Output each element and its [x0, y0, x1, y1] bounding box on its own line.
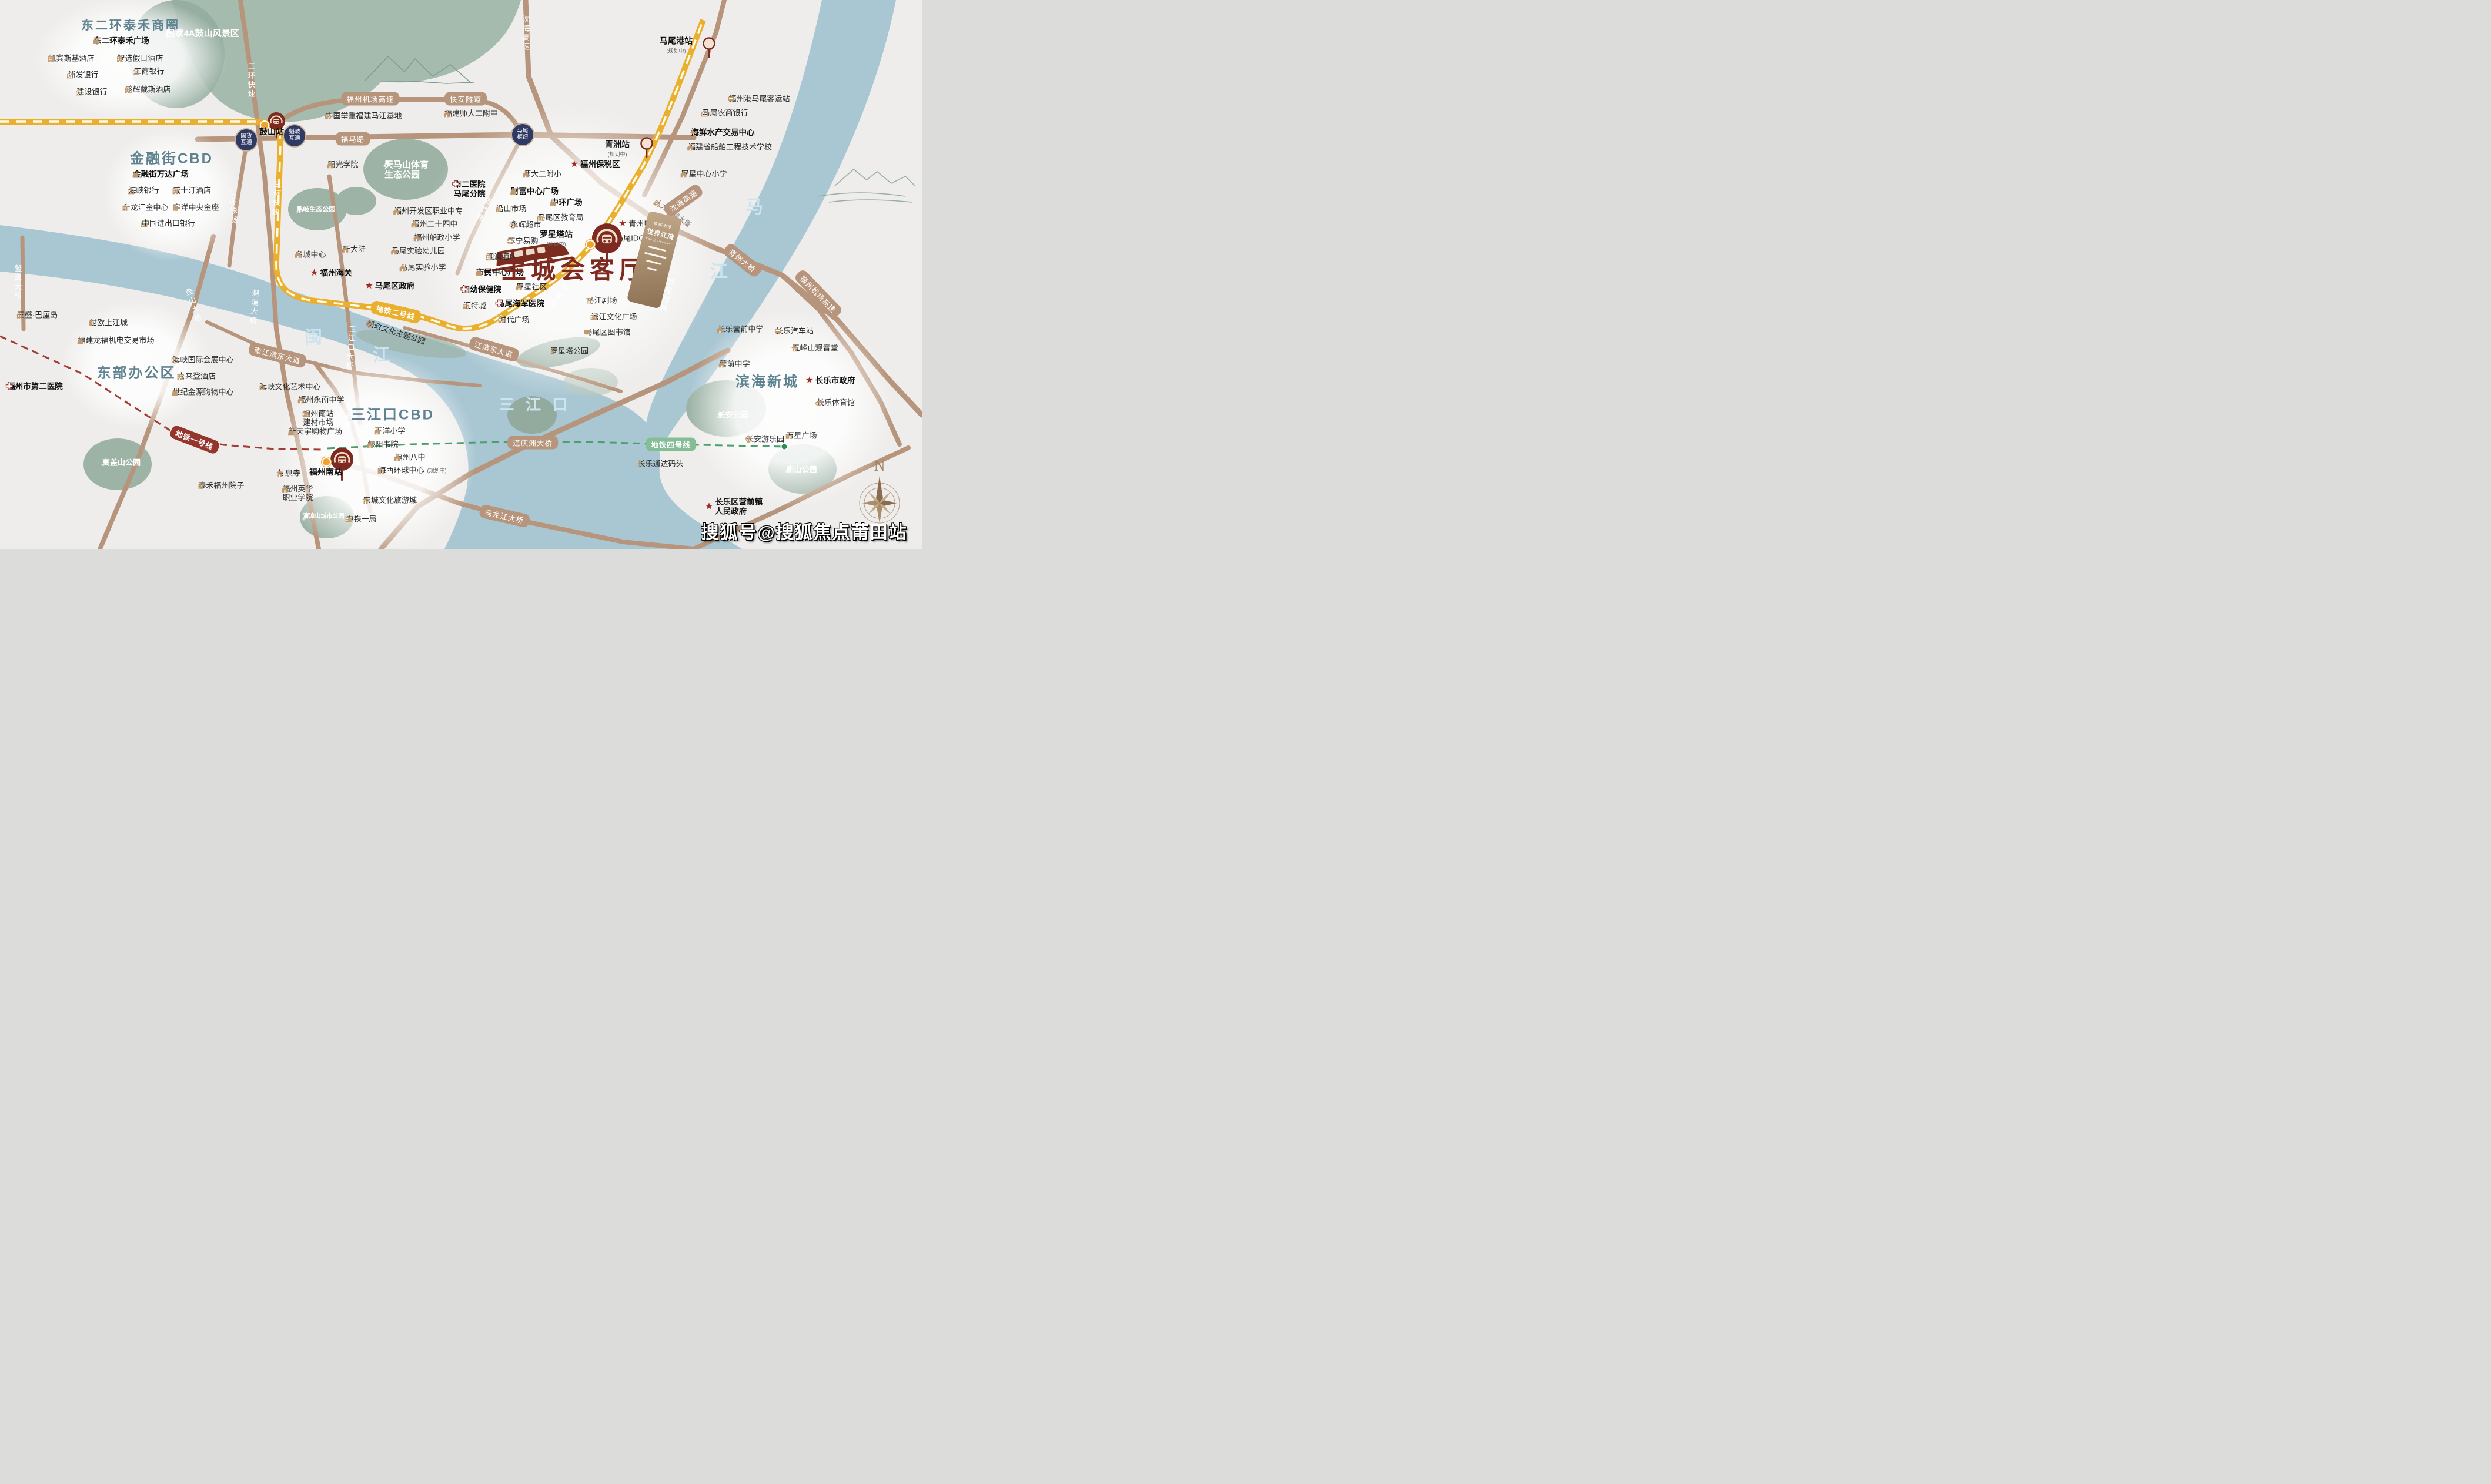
vertical-road-label: 鳌峰大桥: [12, 264, 24, 301]
poi-label: 海峡国际会展中心: [170, 356, 233, 365]
poi-label: 福建龙福机电交易市场: [76, 337, 154, 346]
star-icon: ★: [705, 502, 713, 511]
region-title: 金融街CBD: [130, 147, 213, 168]
poi-label: 滨江文化广场: [589, 313, 637, 322]
poi-label: ★福州海关: [310, 269, 352, 278]
metro-line-badge: 地铁二号线: [370, 300, 422, 324]
poi-label: 福州港马尾客运站: [727, 95, 790, 104]
svg-text:¥: ¥: [704, 112, 706, 116]
poi-label: 世欧上江城: [88, 319, 128, 328]
poi-label: 罗星塔公园: [549, 347, 589, 356]
vertical-road-label: 环岛路: [341, 402, 356, 431]
map-canvas: 东二环泰禾商圈金融街CBD东部办公区三江口CBD滨海新城东二环泰禾广场凯宾斯基酒…: [0, 0, 922, 549]
poi-label: 福建省船舶工程技术学校: [686, 143, 772, 152]
poi-label: 苏宁易购: [506, 237, 538, 246]
poi-label: 国家4A鼓山风景区: [164, 28, 239, 38]
road-name-badge: 道庆洲大桥: [507, 436, 558, 450]
star-icon: ★: [805, 376, 814, 386]
poi-label: ¥建设银行: [75, 88, 107, 97]
poi-label: 海峡文化艺术中心: [258, 383, 320, 392]
poi-label: 五峰山观音堂: [790, 344, 838, 353]
poi-label: 福州船政小学: [412, 234, 460, 243]
station-label: 福州南站: [309, 466, 342, 478]
station-note: (规划中): [660, 47, 693, 55]
poi-label: 长安公园: [715, 411, 748, 420]
poi-label: 凯宾斯基酒店: [46, 55, 94, 63]
poi-label: 魁岐生态公园: [295, 206, 336, 214]
poi-label: 升龙汇金中心: [121, 204, 168, 213]
svg-text:¥: ¥: [135, 71, 138, 75]
station-note: (建设中): [540, 240, 573, 248]
road-name-badge: 快安隧道: [444, 92, 487, 106]
metro-line-badge: 地铁一号线: [169, 424, 220, 455]
road-name-badge: 沈海高速: [662, 183, 704, 218]
poi-label: 师大二附小: [521, 170, 561, 179]
poi-label: 长安游乐园: [744, 436, 784, 444]
vertical-road-label: 三环快速: [246, 62, 257, 99]
poi-label: 市二医院马尾分院: [452, 180, 486, 198]
poi-label: 下洋小学: [373, 427, 405, 436]
poi-label: 长乐汽车站: [774, 327, 814, 336]
poi-label: 福州开发区职业中专: [392, 207, 463, 216]
poi-label: 马尾区教育局: [536, 214, 583, 223]
vertical-road-label: 三环快速: [269, 180, 283, 217]
poi-label: 马尾海军医院: [495, 299, 544, 309]
poi-label: ★福州保税区: [570, 160, 620, 169]
poi-label: 威士汀酒店: [171, 187, 211, 196]
region-title: 东部办公区: [97, 361, 176, 382]
poi-label: 财富中心广场: [509, 187, 559, 196]
vertical-road-label: 三江口大桥: [343, 325, 357, 371]
poi-label: 沿山市场: [494, 205, 526, 214]
svg-text:¥: ¥: [143, 223, 145, 227]
poi-label: 海鲜水产交易中心: [690, 128, 755, 138]
road-name-badge: 乌龙江大桥: [479, 504, 530, 528]
station-note: (规划中): [605, 150, 630, 158]
poi-label: 阳光学院: [326, 161, 358, 170]
poi-label: 汇特城: [462, 302, 486, 311]
wave-icon: [647, 267, 657, 272]
poi-label: ¥中国进出口银行: [140, 220, 195, 229]
poi-label: 海西环球中心(规划中): [376, 467, 446, 475]
interchange-badge: 马尾枢纽: [511, 123, 534, 146]
poi-label: 东二环泰禾广场: [92, 36, 149, 46]
station-label: 罗星塔站(建设中): [540, 229, 573, 248]
poi-label: 马尾区图书馆: [583, 329, 630, 337]
star-icon: ★: [570, 160, 579, 169]
poi-label: ¥浦发银行: [66, 71, 98, 80]
poi-label: 名城中心: [293, 251, 326, 260]
poi-label: ★长乐区营前镇人民政府: [705, 497, 763, 515]
svg-text:¥: ¥: [78, 91, 81, 95]
poi-label: 马尾实验幼儿园: [390, 247, 445, 256]
poi-label: 南山公园: [784, 466, 817, 475]
region-title: 滨海新城: [735, 370, 799, 391]
poi-label: 营前中学: [717, 360, 750, 369]
station-dot-icon: [586, 240, 595, 249]
poi-label: 中铁一局: [344, 515, 376, 524]
vertical-road-label: 君竹路: [473, 195, 495, 225]
vertical-road-label: 鼓山大桥: [182, 287, 204, 325]
water-label: 闽: [305, 323, 326, 349]
poi-label: 新大陆: [341, 246, 366, 254]
poi-label: 宇洋中央金座: [171, 204, 219, 213]
poi-label: 甘泉寺: [276, 470, 300, 478]
poi-label: ★长乐市政府: [805, 376, 855, 386]
poi-label: 福州二十四中: [410, 220, 457, 229]
road-name-badge: 南江滨东大道: [248, 341, 307, 369]
water-label: 马: [745, 192, 767, 218]
poi-label: 岐阳书院: [366, 441, 398, 450]
poi-label: 罗星中心小学: [679, 170, 727, 179]
poi-label: 马江剧场: [584, 297, 617, 306]
poi-label: 宋城文化旅游城: [362, 497, 417, 505]
poi-label: 盛辉戴斯酒店: [123, 86, 170, 95]
vertical-road-label: 魁浦大桥: [247, 289, 261, 326]
wave-icon: [644, 252, 667, 259]
poi-label: 长乐营前中学: [715, 326, 763, 334]
vertical-road-label: 沈海高速: [520, 15, 531, 52]
poi-label: 福州市第二医院: [5, 382, 63, 391]
star-icon: ★: [310, 269, 318, 278]
poi-label: ★马尾区政府: [365, 282, 415, 291]
poi-label: 马尾实验小学: [398, 264, 446, 273]
poi-label: YH永辉超市: [509, 221, 541, 230]
poi-label: ¥工商银行: [132, 68, 164, 76]
vertical-road-label: 二环快速: [225, 188, 240, 226]
main-title: 主城会客厅: [501, 250, 648, 286]
poi-label: 中环广场: [549, 198, 583, 207]
road-name-badge: 福州机场高速: [341, 92, 399, 106]
poi-label: 福州永南中学: [296, 396, 344, 405]
map-labels-layer: 东二环泰禾商圈金融街CBD东部办公区三江口CBD滨海新城东二环泰禾广场凯宾斯基酒…: [0, 0, 922, 549]
poi-label: 金融街万达广场: [131, 170, 189, 179]
station-label: 青洲站(规划中): [605, 139, 630, 158]
star-icon: ★: [365, 282, 373, 291]
poi-label: 泰禾福州院子: [196, 482, 244, 491]
poi-label: 长乐体育馆: [815, 399, 855, 408]
metro-line-badge: 地铁四号线: [646, 438, 696, 451]
station-label: 马尾港站(规划中): [660, 35, 693, 55]
poi-label: ¥马尾农商银行: [700, 109, 748, 118]
interchange-badge: 魁岐互通: [283, 124, 306, 148]
poi-label: 福州八中: [393, 454, 425, 463]
poi-label: 三盛·巴厘岛: [15, 311, 58, 320]
poi-label: 妇幼保健院: [460, 285, 502, 294]
poi-label: 时代广场: [497, 316, 529, 325]
wave-icon: [646, 260, 661, 265]
poi-label: 长乐通达码头: [636, 460, 683, 469]
region-title: 三江口CBD: [351, 403, 434, 424]
poi-label: 高盖山公园: [101, 459, 141, 468]
poi-label: 世纪金源购物中心: [170, 388, 233, 397]
station-dot-icon: [322, 457, 331, 467]
poi-label: 福州南站建材市场: [301, 410, 333, 427]
station-label: 鼓山站: [259, 126, 284, 138]
poi-label: 万星广场: [784, 432, 817, 441]
water-label: 江: [373, 340, 394, 366]
road-name-badge: 福州机场高速: [793, 268, 843, 319]
wave-icon: [648, 246, 666, 252]
poi-label: 清凉山城市公园: [302, 513, 345, 520]
svg-text:YH: YH: [511, 224, 516, 227]
poi-note: (规划中): [427, 468, 447, 474]
road-name-badge: 福马路: [336, 132, 370, 146]
poi-label: 天马山体育生态公园: [383, 160, 429, 180]
watermark: 搜狐号@搜狐焦点莆田站: [701, 518, 907, 544]
compass-north-label: N: [874, 457, 885, 475]
svg-text:¥: ¥: [130, 190, 132, 194]
poi-label: 中国举重福建马江基地: [323, 112, 402, 121]
poi-label: 福建师大二附中: [443, 110, 498, 119]
poi-label: 智选假日酒店: [115, 55, 163, 63]
interchange-badge: 国货互通: [235, 128, 258, 152]
road-name-badge: 江滨东大道: [468, 336, 520, 363]
poi-label: 喜来登酒店: [176, 373, 216, 381]
poi-label: 福州英华职业学院: [280, 485, 313, 503]
water-label: 江: [710, 257, 731, 283]
svg-text:¥: ¥: [69, 74, 72, 78]
poi-label: 新天宇购物广场: [287, 428, 342, 437]
water-label: 三 江 口: [499, 393, 571, 415]
poi-label: ¥海峡银行: [126, 187, 159, 196]
